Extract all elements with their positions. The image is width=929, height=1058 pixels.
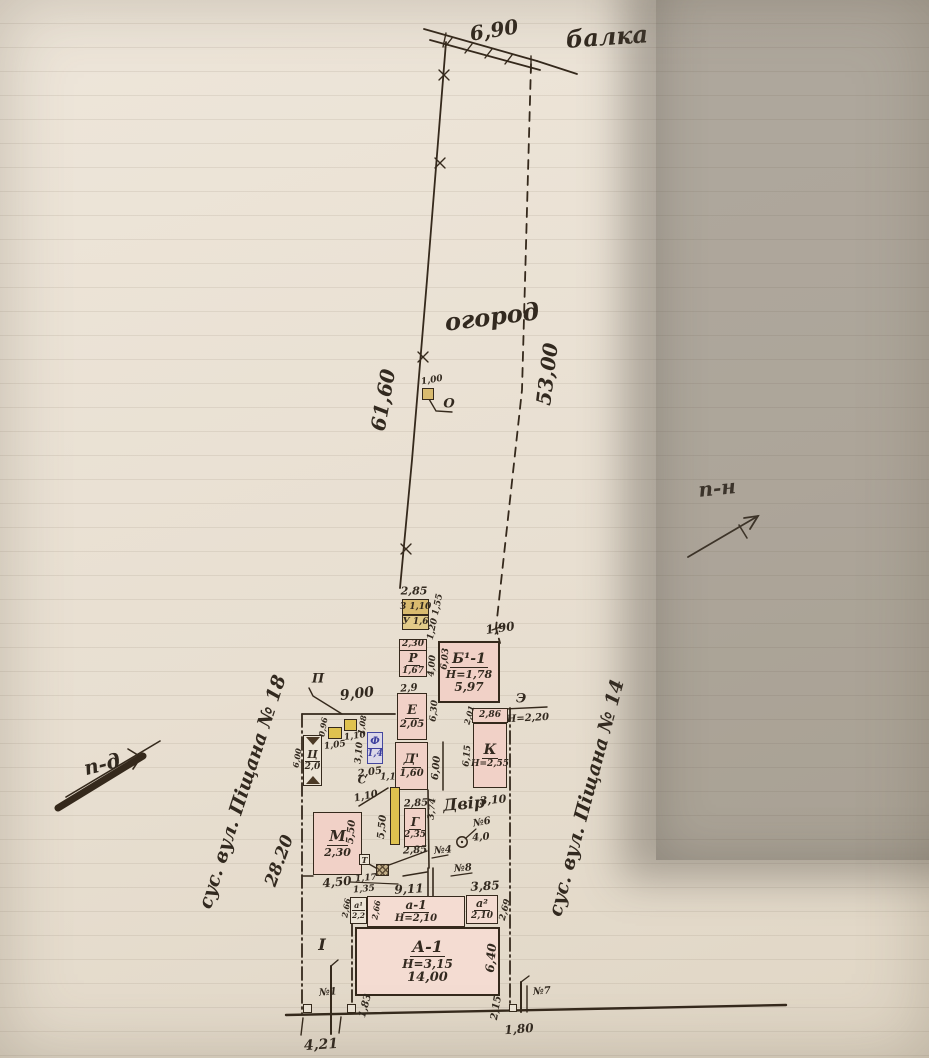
scanned-site-plan: З 1,10 У 1,6 2,30 Р 1,67 Б¹-1 Н=1,78 5,9…: [0, 0, 929, 1058]
page-vignette: [0, 0, 929, 1058]
